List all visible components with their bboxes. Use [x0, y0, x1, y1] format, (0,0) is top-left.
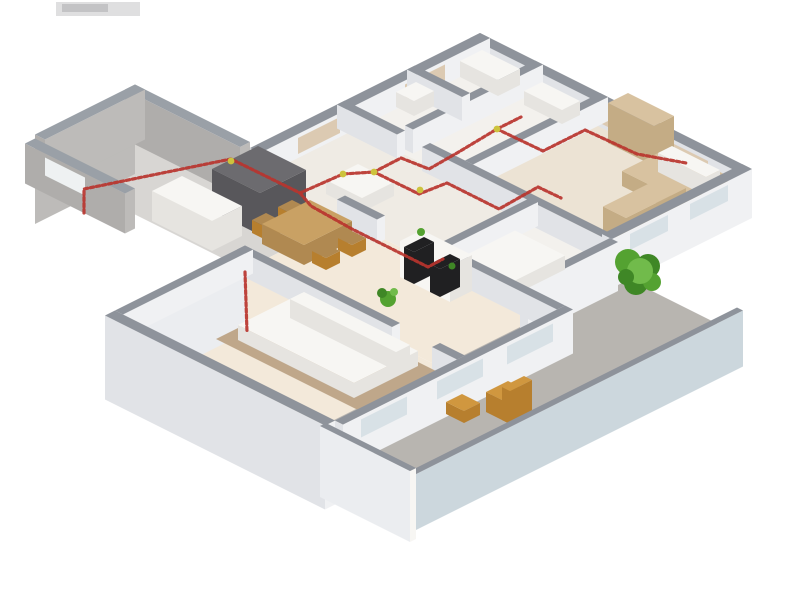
porch-wall [125, 189, 135, 234]
wiring-node [371, 169, 378, 176]
shrub [618, 269, 634, 285]
plant [417, 228, 425, 236]
wiring-node [417, 187, 424, 194]
plant [449, 263, 456, 270]
wiring-path [245, 272, 247, 332]
tv-panel [404, 247, 414, 284]
wiring-node [340, 171, 347, 178]
tv-panel [430, 264, 440, 297]
chair-back [502, 387, 510, 424]
plant [377, 288, 387, 298]
wall-fragment [62, 4, 108, 12]
plant [390, 288, 398, 296]
balcony-railing [410, 468, 416, 542]
interior-wall [405, 126, 413, 154]
interior-wall [462, 93, 470, 121]
floor-plan-3d-render [0, 0, 800, 600]
floor-plan-page [0, 0, 800, 600]
interior-wall [397, 131, 405, 159]
wiring-node [494, 126, 501, 133]
interior-wall [377, 216, 385, 244]
wiring-node [228, 158, 235, 165]
